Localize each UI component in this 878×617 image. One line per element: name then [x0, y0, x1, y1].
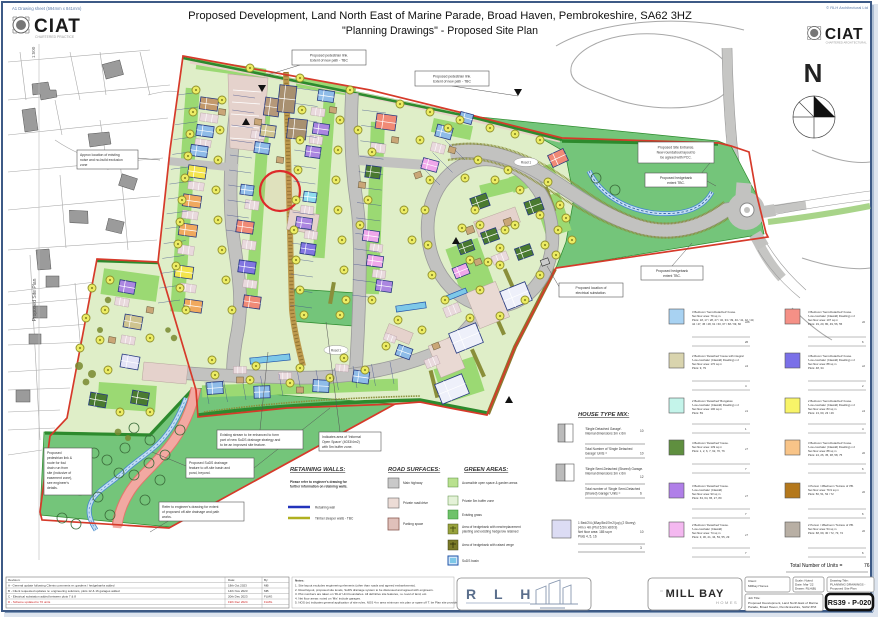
svg-text:3: 3 [640, 546, 642, 550]
svg-text:20th Dec 2023: 20th Dec 2023 [228, 595, 248, 599]
svg-text:6: 6 [640, 492, 642, 496]
svg-text:Road 1: Road 1 [331, 349, 342, 353]
svg-text:(Shared) Garage' Units =: (Shared) Garage' Units = [585, 492, 621, 496]
svg-text:A1 Drawing sheet (594mm x 841m: A1 Drawing sheet (594mm x 841mm) [12, 6, 82, 11]
svg-text:'Single Detached Garage'.: 'Single Detached Garage'. [585, 427, 622, 431]
svg-text:44 / 47, 45 / 48, 61 / 60, 67: 44 / 47, 45 / 48, 61 / 60, 67 / 68 / 69,… [692, 322, 741, 326]
svg-text:FLMG: FLMG [264, 600, 273, 604]
svg-text:zone: zone [80, 163, 87, 167]
svg-text:Retaining wall: Retaining wall [315, 506, 335, 510]
svg-text:x6: x6 [862, 320, 865, 324]
svg-text:Job Title:: Job Title: [748, 596, 761, 600]
svg-text:Date:: Date: [228, 578, 235, 582]
svg-text:Road 1: Road 1 [521, 161, 532, 165]
svg-text:Plots: 50, 51, 52 / 72: Plots: 50, 51, 52 / 72 [808, 492, 834, 496]
svg-text:MB: MB [264, 584, 269, 588]
svg-text:Existing grass: Existing grass [462, 513, 482, 517]
svg-text:Millbay Homes: Millbay Homes [748, 584, 769, 588]
svg-text:CHARTERED PRACTICE: CHARTERED PRACTICE [35, 35, 75, 39]
svg-text:Client:: Client: [748, 579, 757, 583]
svg-text:Please refer to engineer's dra: Please refer to engineer's drawing for [290, 480, 348, 484]
svg-text:(4m x 4m (Plot 5.5m x8/9.9): (4m x 4m (Plot 5.5m x8/9.9) [578, 526, 617, 530]
svg-text:Plots: 9, 79: Plots: 9, 79 [692, 366, 706, 370]
svg-text:Proposed: Proposed [47, 451, 62, 455]
svg-text:Parking space: Parking space [403, 522, 423, 526]
svg-text:planting and existing hedgerow: planting and existing hedgerow retained [462, 530, 519, 534]
svg-text:Private road/drive: Private road/drive [403, 501, 428, 505]
svg-text:to be an improved site feature: to be an improved site feature. [220, 443, 266, 447]
svg-text:Proposed hedgebank: Proposed hedgebank [660, 176, 693, 180]
svg-text:Total Number of 'Single Detach: Total Number of 'Single Detached [585, 447, 633, 451]
svg-text:CHARTERED ARCHITECTURAL: CHARTERED ARCHITECTURAL [826, 41, 867, 45]
svg-text:10: 10 [640, 452, 644, 456]
svg-text:Proposed location of: Proposed location of [576, 286, 607, 290]
svg-text:noise and no-build exclusion: noise and no-build exclusion [80, 158, 123, 162]
svg-text:Total Number of Units =: Total Number of Units = [790, 563, 842, 569]
svg-text:Existing stream to be enhanced: Existing stream to be enhanced to form [220, 433, 279, 437]
svg-text:Plots: 24, 26, 35, 38, 58, 75: Plots: 24, 26, 35, 38, 58, 75 [808, 453, 843, 457]
svg-text:MILL BAY: MILL BAY [666, 588, 725, 600]
svg-text:Plots: 1, 2, 6, 7, 62, 70, 76: Plots: 1, 2, 6, 7, 62, 70, 76 [692, 449, 725, 453]
svg-text:A - General update following C: A - General update following Clients com… [8, 584, 115, 588]
svg-text:R L H: R L H [466, 586, 537, 602]
svg-text:be agreed with PCC.: be agreed with PCC. [660, 156, 691, 160]
svg-text:electrical substation.: electrical substation. [576, 291, 607, 295]
svg-text:pedestrian link &: pedestrian link & [47, 456, 73, 460]
svg-text:x4: x4 [862, 409, 865, 413]
svg-text:Approx location of existing: Approx location of existing [80, 153, 120, 157]
svg-text:Drawn: RLH(B): Drawn: RLH(B) [795, 587, 816, 591]
svg-text:x7: x7 [745, 533, 748, 537]
svg-text:© RLH Architectural Ltd: © RLH Architectural Ltd [826, 5, 868, 10]
svg-text:B - Client requested updates r: B - Client requested updates re: enginee… [8, 589, 120, 593]
svg-text:further information on retaini: further information on retaining walls. [290, 485, 347, 489]
svg-text:Accessible open space & garden: Accessible open space & garden areas [462, 481, 518, 485]
svg-text:see engineer's: see engineer's [47, 481, 69, 485]
svg-text:ROAD SURFACES:: ROAD SURFACES: [388, 467, 440, 473]
svg-text:Plots: 13, 60, 23 / 49: Plots: 13, 60, 23 / 49 [808, 411, 834, 415]
svg-text:Indicates area of 'Informal: Indicates area of 'Informal [322, 435, 361, 439]
svg-text:Area of hedgebank with new/rep: Area of hedgebank with new/replacement [462, 525, 521, 529]
svg-text:FLMG: FLMG [264, 595, 273, 599]
svg-text:MB: MB [264, 589, 269, 593]
svg-text:New roundabout layout to: New roundabout layout to [657, 151, 696, 155]
svg-text:Timber sleeper walls - TBC: Timber sleeper walls - TBC [315, 517, 354, 521]
svg-text:5. NOS (m) indicates general a: 5. NOS (m) indicates general application… [295, 601, 473, 605]
svg-text:x4: x4 [745, 364, 748, 368]
svg-text:feature to off-site basin and: feature to off-site basin and [189, 466, 230, 470]
svg-text:Plots: 3, 30, 21, 34, 53, 55,: Plots: 3, 30, 21, 34, 53, 55, 29 [692, 535, 730, 539]
svg-text:By:: By: [264, 578, 269, 582]
svg-text:x6: x6 [862, 490, 865, 494]
svg-text:extent TBC.: extent TBC. [663, 274, 681, 278]
svg-text:Net floor area: 185 sq m: Net floor area: 185 sq m [578, 530, 613, 534]
svg-text:N: N [804, 58, 823, 88]
svg-text:Plots: 19, 20, 80, 49, 56, 55: Plots: 19, 20, 80, 49, 56, 55 [808, 322, 843, 326]
svg-text:HOUSE TYPE MIX:: HOUSE TYPE MIX: [578, 412, 629, 418]
svg-text:Proposed Site Plan: Proposed Site Plan [830, 587, 857, 591]
svg-text:14th Nov 2023: 14th Nov 2023 [228, 589, 248, 593]
svg-text:extent TBC.: extent TBC. [667, 181, 685, 185]
svg-text:site (inclusive of: site (inclusive of [47, 471, 71, 475]
svg-text:Main highway: Main highway [403, 481, 423, 485]
svg-text:Private 5m buffer zone: Private 5m buffer zone [462, 499, 494, 503]
svg-text:Revision:: Revision: [8, 578, 21, 582]
svg-text:Extent of new path - TBC: Extent of new path - TBC [433, 80, 471, 84]
svg-text:18th Oct 2023: 18th Oct 2023 [228, 584, 247, 588]
svg-text:D - Scheme updated to 76 units: D - Scheme updated to 76 units [8, 600, 51, 604]
svg-text:x7: x7 [745, 494, 748, 498]
svg-text:12: 12 [640, 475, 644, 479]
svg-text:76: 76 [864, 563, 870, 569]
svg-text:pond, beyond.: pond, beyond. [189, 471, 211, 475]
svg-text:10: 10 [640, 530, 644, 534]
svg-text:Proposed hedgebank: Proposed hedgebank [656, 269, 689, 273]
svg-text:19th Dec 2024: 19th Dec 2024 [228, 600, 248, 604]
svg-text:RS39 - P-020: RS39 - P-020 [828, 598, 872, 607]
svg-text:Open Space' (4033/4m2): Open Space' (4033/4m2) [322, 440, 360, 444]
svg-text:part of new SuDS drainage stra: part of new SuDS drainage strategy and [220, 438, 280, 442]
svg-text:Refer to engineer's drawing fo: Refer to engineer's drawing for extent [162, 505, 218, 509]
svg-text:Area of hedgebank with raised: Area of hedgebank with raised verge [462, 543, 514, 547]
svg-text:with 5m buffer zone.: with 5m buffer zone. [322, 445, 353, 449]
svg-text:Proposed SuDS drainage: Proposed SuDS drainage [189, 461, 228, 465]
svg-text:Plots 4, 5, 16: Plots 4, 5, 16 [578, 535, 597, 539]
svg-text:1:500: 1:500 [31, 46, 36, 58]
svg-text:Proposed pedestrian link.: Proposed pedestrian link. [310, 54, 348, 58]
svg-text:1 Bed/2/4 (4Bay/5x4/7m2/(up) (: 1 Bed/2/4 (4Bay/5x4/7m2/(up) (2 Storey) [578, 521, 635, 525]
svg-text:x7: x7 [745, 447, 748, 451]
svg-text:x6: x6 [862, 529, 865, 533]
svg-text:route for foul: route for foul [47, 461, 66, 465]
svg-text:Proposed Development, Land Nor: Proposed Development, Land North East of… [188, 10, 692, 22]
svg-text:10: 10 [640, 429, 644, 433]
svg-text:Proposed Site Plan: Proposed Site Plan [32, 278, 38, 321]
svg-text:Parade, Broad Haven, Pembrokes: Parade, Broad Haven, Pembrokeshire, SA62… [748, 605, 816, 609]
svg-text:Internal dimensions 3m x 6m: Internal dimensions 3m x 6m [585, 432, 626, 436]
svg-text:x1: x1 [745, 409, 748, 413]
svg-text:Total number of 'Single Semi-D: Total number of 'Single Semi-Detached [585, 487, 640, 491]
svg-text:CIAT: CIAT [34, 16, 81, 37]
svg-text:RETAINING WALLS:: RETAINING WALLS: [290, 467, 345, 473]
svg-text:Plots: 68, 69, 30 / 72, 73, 74: Plots: 68, 69, 30 / 72, 73, 74 [808, 531, 843, 535]
svg-text:Proposed Site Entrance.: Proposed Site Entrance. [658, 146, 695, 150]
svg-text:HOMES: HOMES [716, 600, 738, 605]
svg-text:Garage' Units =: Garage' Units = [585, 452, 607, 456]
svg-text:of proposed off-site drainage: of proposed off-site drainage and path [162, 510, 219, 514]
svg-text:C - Electrical substation adde: C - Electrical substation added between … [8, 595, 76, 599]
svg-text:drain run from: drain run from [47, 466, 68, 470]
svg-text:Plots: 48, 34: Plots: 48, 34 [808, 366, 824, 370]
svg-text:'Single Semi-Detached (Shared): 'Single Semi-Detached (Shared) Garage. [585, 467, 643, 471]
svg-text:Proposed pedestrian link.: Proposed pedestrian link. [433, 75, 471, 79]
svg-text:x26: x26 [745, 320, 750, 324]
svg-text:Extent of new path - TBC: Extent of new path - TBC [310, 59, 348, 63]
svg-text:Plots: 59: Plots: 59 [692, 411, 703, 415]
svg-text:details.: details. [47, 486, 58, 490]
svg-text:"Planning Drawings" - Proposed: "Planning Drawings" - Proposed Site Plan [342, 25, 538, 37]
svg-text:works.: works. [162, 515, 172, 519]
svg-text:easement zone),: easement zone), [47, 476, 72, 480]
svg-text:SuDS basin: SuDS basin [462, 559, 479, 563]
svg-text:x2: x2 [862, 364, 865, 368]
svg-text:26: 26 [745, 340, 749, 344]
svg-text:Notes:: Notes: [295, 579, 304, 583]
svg-text:Internal dimensions 3m x 6m: Internal dimensions 3m x 6m [585, 472, 626, 476]
svg-text:Plots: 63, 64, 65, 27, 80: Plots: 63, 64, 65, 27, 80 [692, 496, 722, 500]
svg-text:x6: x6 [862, 451, 865, 455]
svg-text:GREEN AREAS:: GREEN AREAS: [464, 467, 508, 473]
